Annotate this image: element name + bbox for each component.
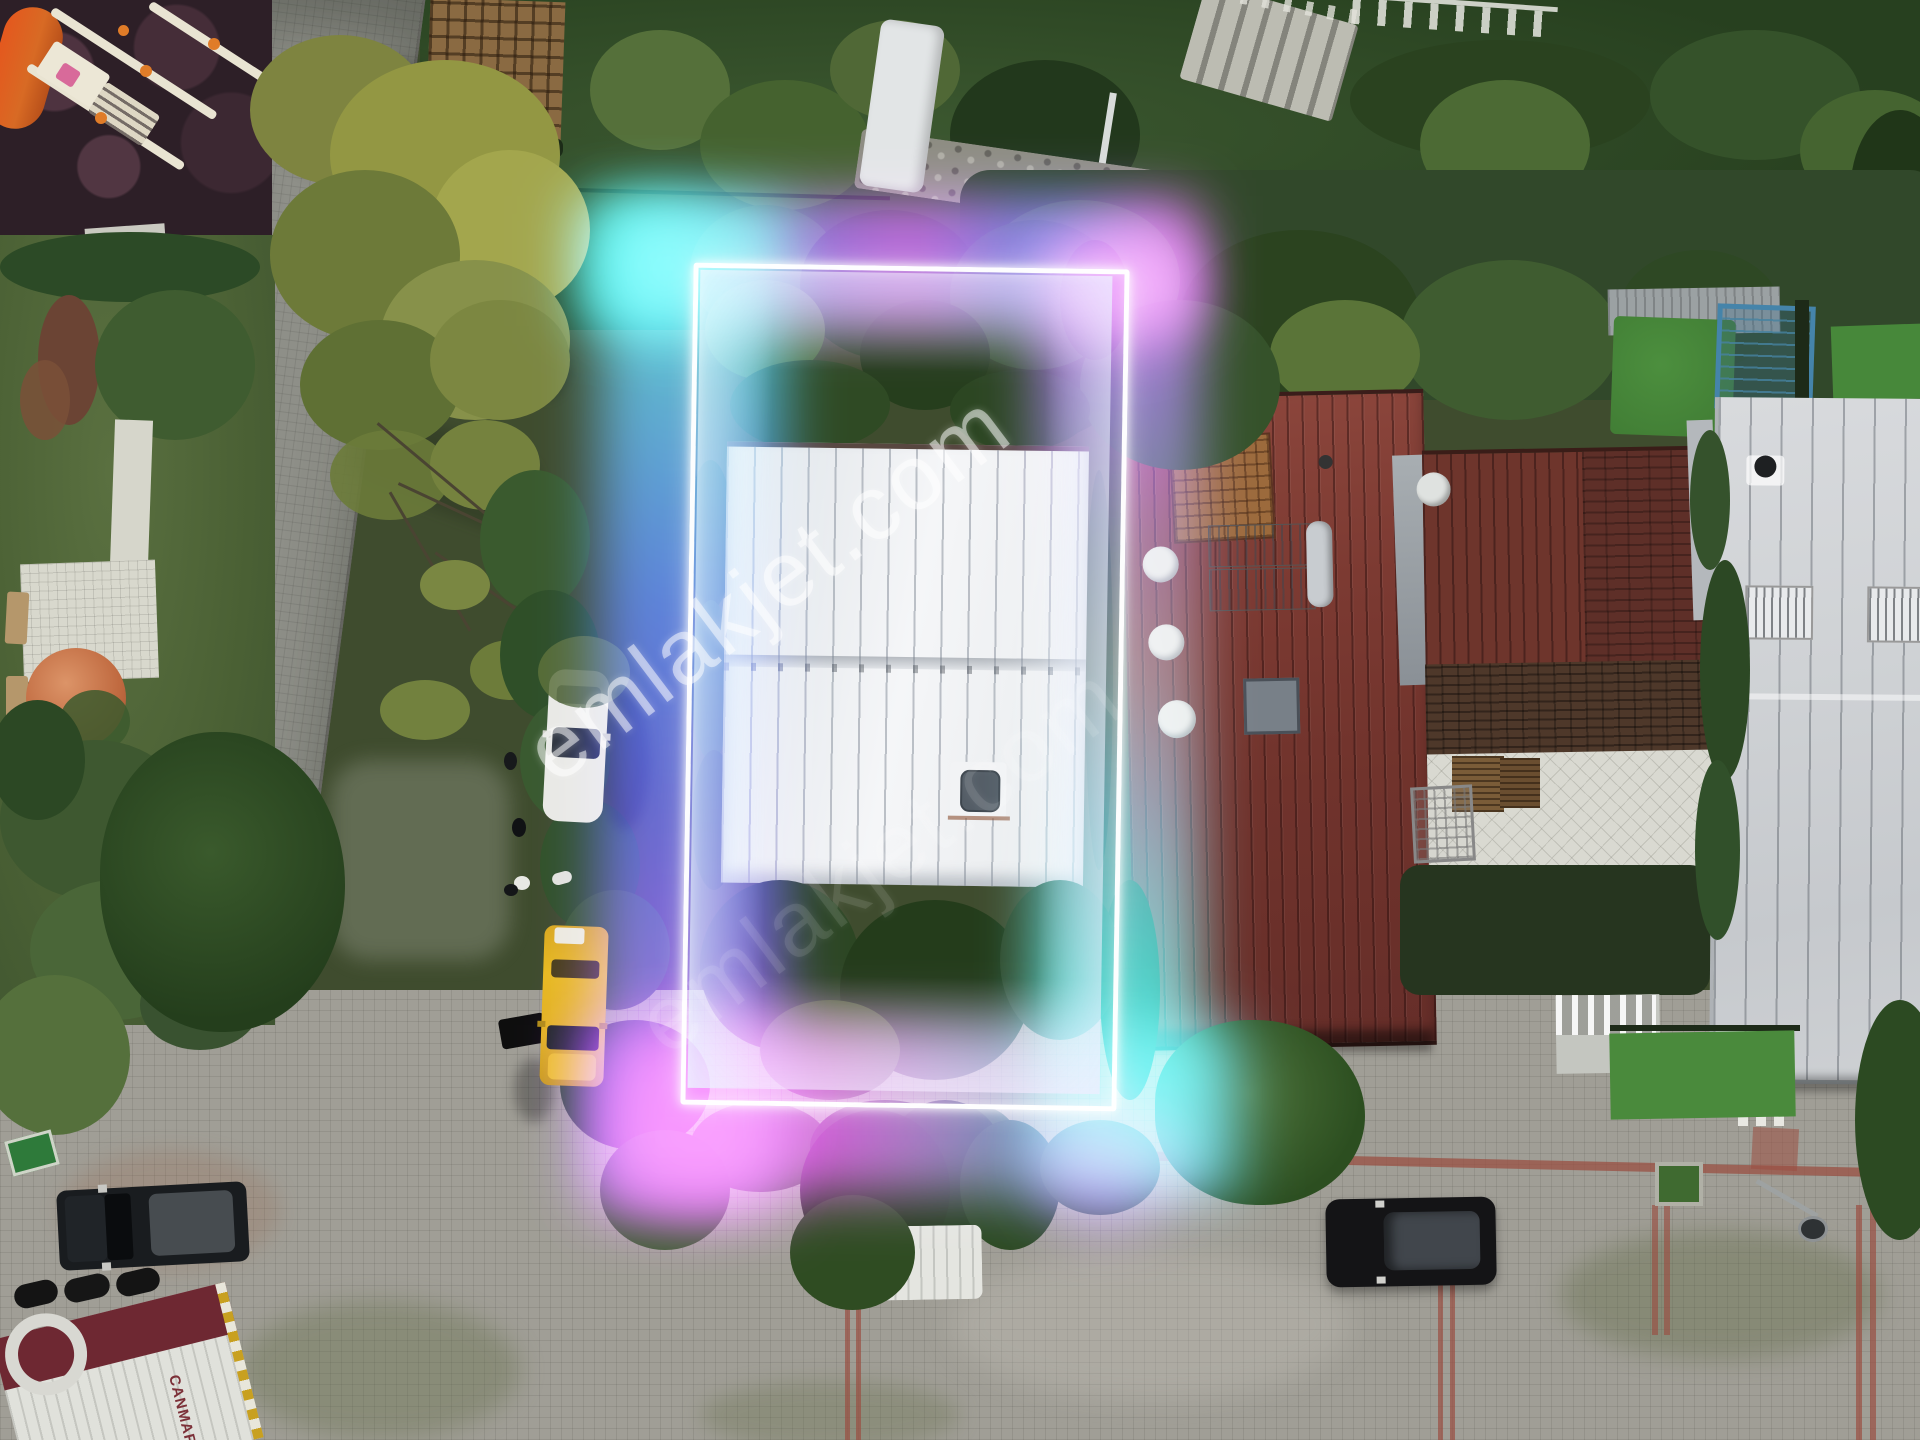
tree-canopy <box>430 300 570 420</box>
yard-shade <box>1400 865 1710 995</box>
turf-lawn <box>1609 1030 1795 1119</box>
red-bush <box>20 360 70 440</box>
wood-pallets <box>1500 758 1540 808</box>
tree-canopy <box>380 680 470 740</box>
moss-stain <box>1560 1230 1880 1360</box>
turf-lawn <box>1831 323 1920 401</box>
red-paver-patch <box>1751 1127 1799 1171</box>
tree-canopy <box>790 1195 915 1310</box>
fence <box>1795 300 1809 400</box>
person <box>512 818 526 837</box>
conifer-tree <box>100 732 345 1032</box>
lamp-head <box>1798 1216 1828 1242</box>
tree-canopy <box>1400 260 1620 420</box>
frame-knob <box>118 25 129 36</box>
tree-canopy <box>420 560 490 610</box>
person <box>504 884 518 896</box>
pickup-cab <box>64 1195 107 1263</box>
red-paver-line <box>1664 1205 1670 1335</box>
worn-pavement <box>950 1250 1350 1400</box>
red-paver-line <box>1652 1205 1658 1335</box>
skylight <box>1243 678 1300 735</box>
car-mirror <box>102 1262 111 1270</box>
red-paver-line <box>845 1295 850 1440</box>
person <box>504 752 517 770</box>
hedge <box>95 290 255 440</box>
red-paver-line <box>1438 1262 1443 1440</box>
skylight <box>1867 586 1920 643</box>
moss-stain <box>240 1300 520 1440</box>
park-bench <box>5 591 30 644</box>
frame-knob <box>208 38 220 50</box>
trailer-brand-text: CANMAR <box>165 1373 199 1440</box>
hedge <box>1700 560 1750 780</box>
taxi-rear-window <box>551 959 600 979</box>
frame-knob <box>140 65 152 77</box>
dark-pickup <box>56 1181 250 1271</box>
black-suv <box>1325 1197 1497 1288</box>
worn-pavement <box>330 760 510 960</box>
solar-panel <box>1208 523 1315 567</box>
hedge <box>1690 430 1730 570</box>
aerial-photo: CANMAR emlakjet.com emlakjet.com <box>0 0 1920 1440</box>
street-planter <box>1655 1162 1703 1206</box>
red-paver-line <box>1870 1205 1876 1440</box>
car-mirror <box>537 1021 545 1027</box>
red-paver-line <box>856 1295 861 1440</box>
car-mirror <box>1377 1276 1386 1283</box>
hedge <box>480 470 590 610</box>
car-mirror <box>1375 1200 1384 1207</box>
taxi-roof-sign <box>554 927 585 944</box>
water-tank <box>1306 521 1334 608</box>
pickup-bed-cover <box>148 1190 235 1256</box>
vent-pipe <box>1754 455 1776 477</box>
suv-glass-roof <box>1383 1211 1480 1271</box>
red-roof-building <box>1422 445 1722 692</box>
red-paver-line <box>1856 1205 1862 1440</box>
pickup-glass <box>104 1193 133 1260</box>
hedge <box>0 232 260 302</box>
metal-cage <box>1410 784 1476 863</box>
frame-knob <box>95 112 107 124</box>
red-paver-line <box>1450 1262 1455 1440</box>
solar-panel <box>1209 567 1316 611</box>
hedge <box>1695 760 1740 940</box>
skylight <box>1745 585 1813 640</box>
car-mirror <box>98 1184 107 1192</box>
